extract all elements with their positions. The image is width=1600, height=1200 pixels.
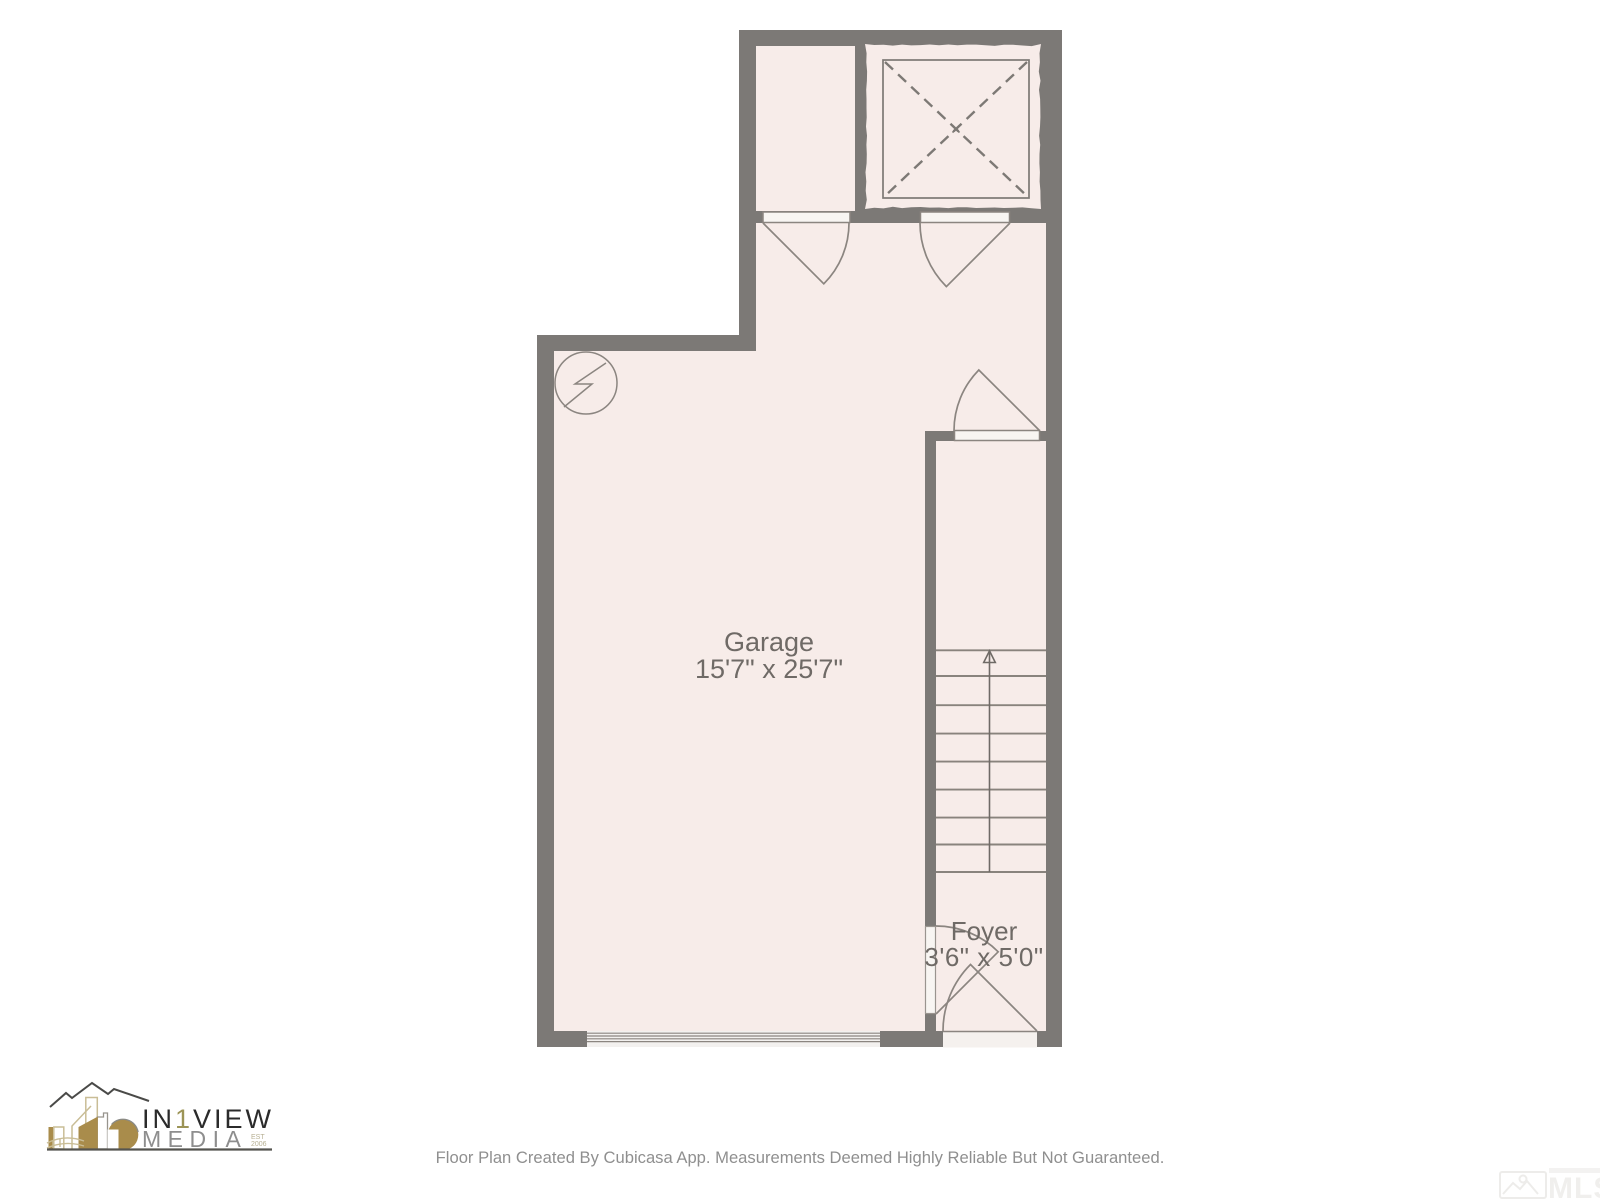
svg-text:3'6" x 5'0": 3'6" x 5'0" <box>924 942 1043 972</box>
svg-text:MEDIA: MEDIA <box>142 1126 247 1152</box>
svg-text:2006: 2006 <box>251 1141 267 1148</box>
svg-text:MLS: MLS <box>1548 1172 1600 1200</box>
svg-text:EST: EST <box>251 1134 265 1141</box>
svg-text:Floor Plan Created By Cubicasa: Floor Plan Created By Cubicasa App. Meas… <box>436 1148 1165 1167</box>
svg-text:Garage: Garage <box>724 627 814 657</box>
svg-text:15'7" x 25'7": 15'7" x 25'7" <box>695 654 843 684</box>
